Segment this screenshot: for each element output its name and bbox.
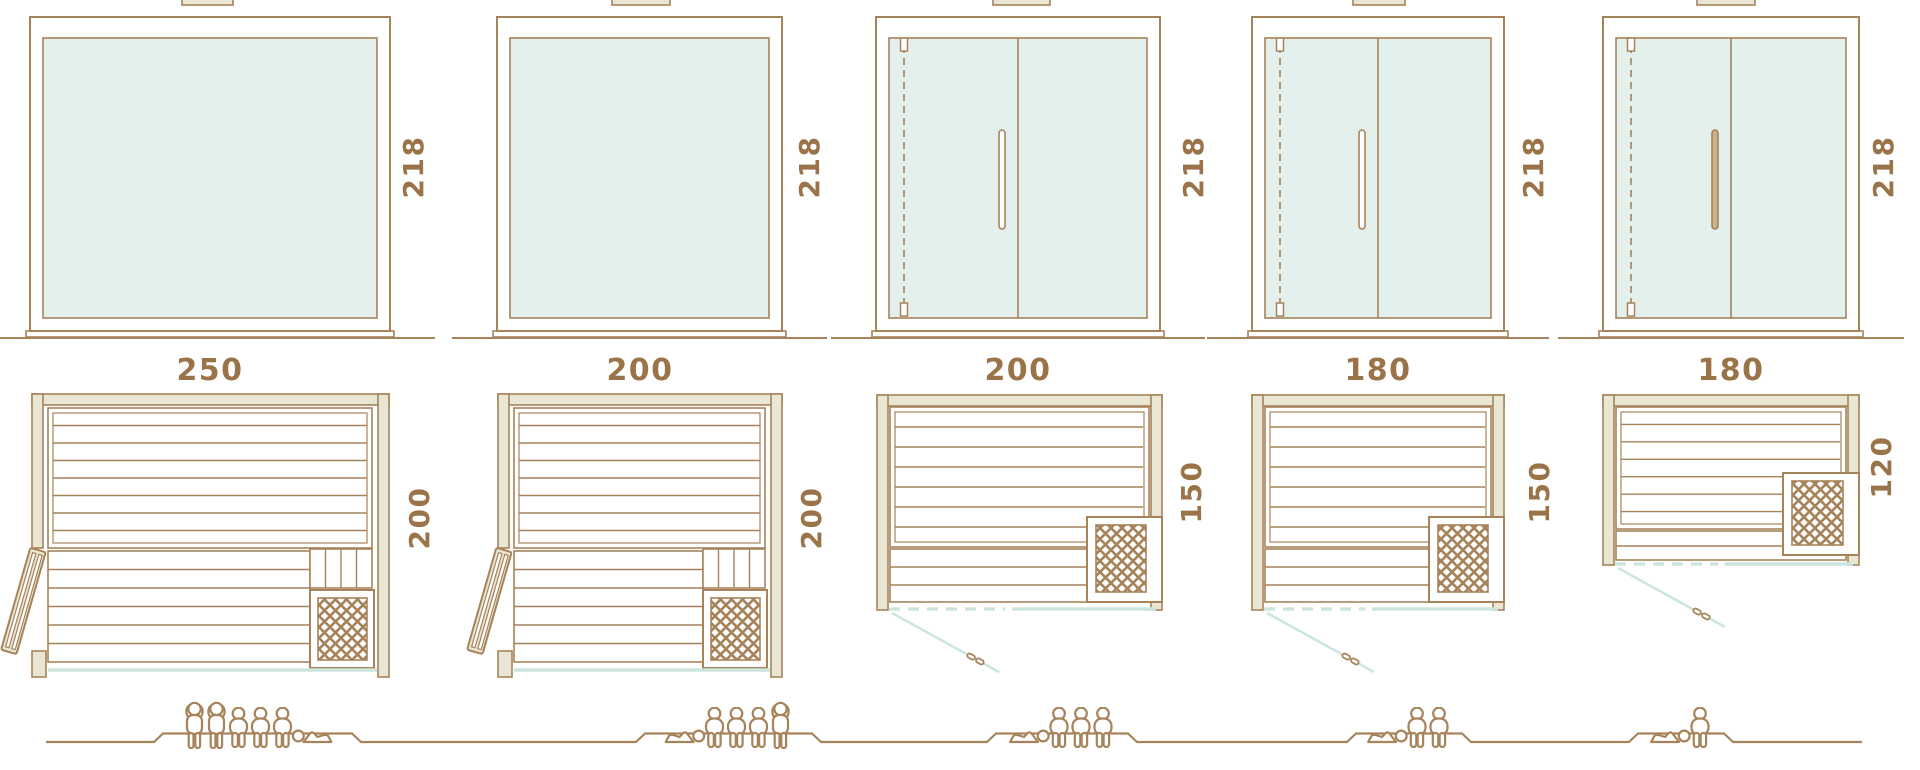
elevation-1	[0, 0, 435, 338]
width-label-2: 200	[606, 356, 673, 386]
hinge-icon-top	[901, 38, 908, 51]
floor-plan-3	[877, 395, 1162, 672]
elevation-3	[831, 0, 1205, 338]
wall-left	[32, 394, 43, 548]
depth-label-2: 200	[798, 487, 826, 550]
elevation-5	[1558, 0, 1904, 338]
person-sitting-icon	[1051, 708, 1068, 747]
sauna-size-diagram: 250 200 200 180 180 218 218 218 218 218 …	[0, 0, 1920, 770]
roof-overhang	[182, 0, 233, 5]
elevation-2	[452, 0, 827, 338]
person-sitting-icon	[750, 708, 767, 747]
roof-overhang	[1697, 0, 1755, 5]
wall-left	[1603, 395, 1614, 565]
capacity-group-4	[1368, 708, 1447, 747]
capacity-group-3	[1010, 708, 1111, 747]
capacity-group-5	[1651, 708, 1708, 747]
wall-top	[1603, 395, 1859, 406]
depth-label-3: 150	[1178, 461, 1206, 524]
person-lying-icon	[1651, 731, 1689, 742]
glass-panel	[510, 38, 769, 318]
capacity-group-2	[666, 703, 789, 748]
diagram-canvas	[0, 0, 1920, 770]
roof-overhang	[1353, 0, 1405, 5]
floor-plan-2	[467, 394, 782, 677]
person-sitting-icon	[230, 708, 247, 747]
person-lying-icon	[1010, 731, 1048, 742]
lower-bench	[514, 551, 703, 662]
bench-step	[703, 549, 765, 588]
door-handle-icon	[1359, 130, 1365, 229]
person-standing-icon	[208, 703, 224, 748]
upper-bench	[514, 408, 765, 548]
hinge-icon-top	[1277, 38, 1284, 51]
width-label-1: 250	[176, 356, 243, 386]
height-label-3: 218	[1180, 136, 1208, 199]
wall-right	[378, 394, 389, 677]
height-label-1: 218	[400, 136, 428, 199]
floor-plan-1	[1, 394, 389, 677]
person-sitting-icon	[274, 708, 291, 747]
wall-left	[1252, 395, 1263, 610]
lower-bench	[48, 551, 310, 662]
heater-icon	[1783, 473, 1859, 555]
wall-right	[771, 394, 782, 677]
glass-panel	[43, 38, 377, 318]
height-label-2: 218	[796, 136, 824, 199]
person-sitting-icon	[1073, 708, 1090, 747]
heater-icon	[1087, 517, 1162, 602]
width-label-4: 180	[1344, 356, 1411, 386]
floor-plan-5	[1603, 395, 1859, 627]
hinge-icon-top	[1628, 38, 1635, 51]
floor-plan-4	[1252, 395, 1504, 672]
person-sitting-icon	[1409, 708, 1426, 747]
person-lying-icon	[666, 731, 704, 742]
roof-overhang	[993, 0, 1050, 5]
bench-step	[310, 549, 372, 588]
depth-label-1: 200	[406, 487, 434, 550]
wall-left	[877, 395, 888, 610]
width-label-5: 180	[1697, 356, 1764, 386]
hinge-icon-bottom	[901, 303, 908, 316]
wall-top	[1252, 395, 1504, 406]
width-label-3: 200	[984, 356, 1051, 386]
wall-left	[498, 394, 509, 548]
wall-top	[877, 395, 1162, 406]
hinge-icon-bottom	[1277, 303, 1284, 316]
door-handle-icon	[999, 130, 1005, 229]
door-leaf-open	[1, 548, 46, 654]
person-sitting-icon	[252, 708, 269, 747]
heater-icon	[310, 590, 374, 668]
person-sitting-icon	[1095, 708, 1112, 747]
upper-bench	[48, 408, 372, 548]
wall-top	[498, 394, 782, 405]
person-sitting-icon	[728, 708, 745, 747]
depth-label-4: 150	[1526, 461, 1554, 524]
height-label-4: 218	[1520, 136, 1548, 199]
person-standing-icon	[186, 703, 202, 748]
elevation-4	[1207, 0, 1549, 338]
wall-stub	[32, 651, 46, 677]
height-label-5: 218	[1870, 136, 1898, 199]
heater-icon	[1429, 517, 1504, 602]
heater-icon	[703, 590, 767, 668]
wall-stub	[498, 651, 512, 677]
person-sitting-icon	[706, 708, 723, 747]
door-handle-icon	[1712, 130, 1718, 229]
wall-top	[32, 394, 389, 405]
roof-overhang	[612, 0, 670, 5]
person-standing-icon	[772, 703, 788, 748]
hinge-icon-bottom	[1628, 303, 1635, 316]
depth-label-5: 120	[1868, 436, 1896, 499]
person-sitting-icon	[1431, 708, 1448, 747]
person-lying-icon	[293, 731, 331, 742]
person-lying-icon	[1368, 731, 1406, 742]
capacity-group-1	[186, 703, 331, 748]
person-sitting-icon	[1692, 708, 1709, 747]
door-leaf-open	[467, 548, 512, 654]
